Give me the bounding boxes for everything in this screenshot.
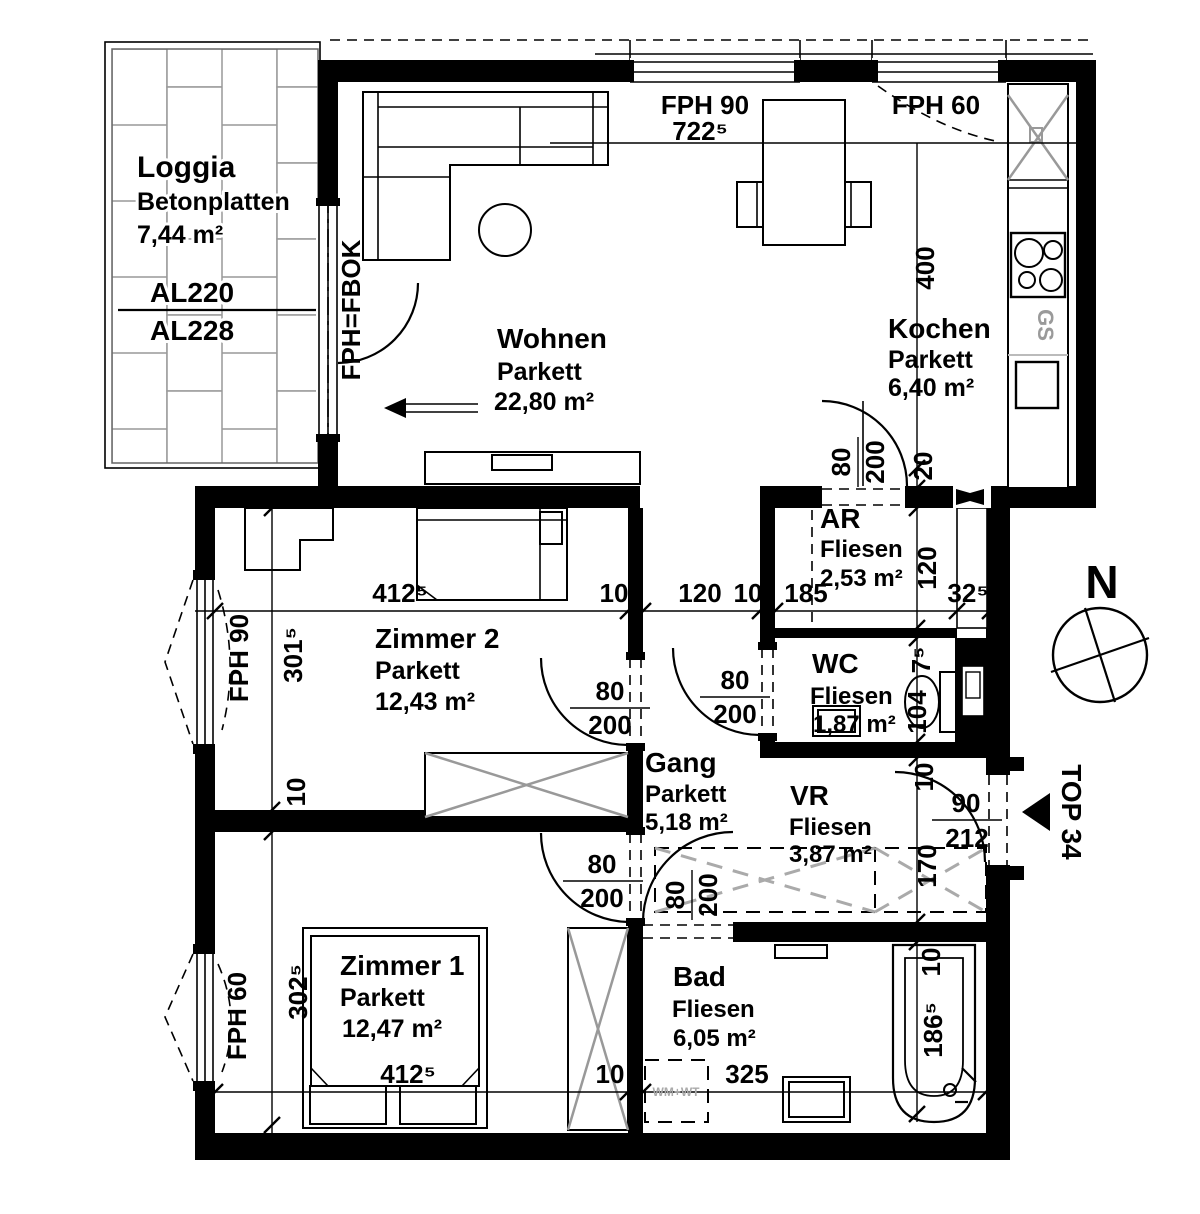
furniture-wardrobe-zimmer2	[425, 753, 628, 817]
bad-floor: Fliesen	[672, 996, 755, 1023]
dim-gang-opening: 120	[678, 578, 721, 608]
vr-floor: Fliesen	[789, 814, 872, 841]
dim-top-total: 722⁵	[672, 116, 728, 146]
svg-text:212: 212	[945, 823, 988, 853]
wohnen-name: Wohnen	[497, 323, 607, 354]
loggia-area: 7,44 m²	[137, 221, 223, 249]
zimmer1-name: Zimmer 1	[340, 950, 465, 981]
furniture-round-table	[479, 204, 531, 256]
dim-kitchen-offset: 20	[908, 452, 938, 481]
window-label-top-60: FPH 60	[892, 90, 980, 120]
radiator-bad	[775, 945, 827, 958]
dim-ar-width: 185	[784, 578, 827, 608]
kochen-name: Kochen	[888, 313, 991, 344]
svg-text:80: 80	[826, 448, 856, 477]
cooktop-icon	[1011, 233, 1065, 297]
ar-area: 2,53 m²	[820, 565, 903, 592]
zimmer2-area: 12,43 m²	[375, 688, 475, 716]
window-top-fph90	[622, 58, 806, 84]
oven-icon	[1016, 362, 1058, 408]
compass-icon	[1051, 608, 1149, 702]
svg-text:200: 200	[860, 440, 890, 483]
dim-vr-length: 170	[912, 844, 942, 887]
bad-area: 6,05 m²	[673, 1025, 756, 1052]
furniture-bed-zimmer2	[417, 508, 567, 600]
kochen-area: 6,40 m²	[888, 374, 974, 402]
gang-name: Gang	[645, 747, 717, 778]
ar-name: AR	[820, 503, 860, 534]
dishwasher-label: GS	[1033, 309, 1058, 341]
vr-area: 3,87 m²	[789, 841, 872, 868]
bad-name: Bad	[673, 961, 726, 992]
shaft	[957, 508, 987, 628]
dim-tub-length: 186⁵	[918, 1002, 948, 1058]
svg-text:80: 80	[660, 881, 690, 910]
dim-shaft-width: 32⁵	[947, 578, 988, 608]
loggia-level-upper: AL220	[150, 277, 234, 308]
floor-plan-drawing: Loggia Betonplatten 7,44 m² AL220 AL228 …	[0, 0, 1200, 1214]
ar-floor: Fliesen	[820, 536, 903, 563]
window-label-left-60: FPH 60	[222, 972, 252, 1060]
wall-niche	[962, 666, 984, 716]
compass-north-label: N	[1085, 556, 1118, 608]
dim-wall-10-right: 10	[909, 763, 939, 792]
loggia-name: Loggia	[137, 151, 236, 184]
svg-text:80: 80	[721, 665, 750, 695]
dim-zimmer2-length: 301⁵	[278, 627, 308, 683]
unit-label: TOP 34	[1056, 764, 1087, 860]
wc-floor: Fliesen	[810, 683, 893, 710]
svg-text:200: 200	[588, 710, 631, 740]
dim-kitchen-length: 400	[910, 246, 940, 289]
loggia-floor: Betonplatten	[137, 188, 290, 216]
dim-ar-length: 120	[912, 546, 942, 589]
dim-wall-10-left: 10	[281, 778, 311, 807]
svg-text:90: 90	[952, 788, 981, 818]
wohnen-area: 22,80 m²	[494, 388, 594, 416]
svg-text:200: 200	[713, 699, 756, 729]
room-loggia	[105, 42, 320, 468]
dim-wall-7-5: 7⁵	[906, 647, 936, 674]
dim-bath-offset: 10	[916, 948, 946, 977]
zimmer2-floor: Parkett	[375, 657, 460, 685]
zimmer1-area: 12,47 m²	[342, 1015, 442, 1043]
svg-text:200: 200	[580, 883, 623, 913]
wohnen-floor: Parkett	[497, 358, 582, 386]
vr-name: VR	[790, 780, 829, 811]
window-label-balcony: FPH=FBOK	[336, 239, 366, 380]
wall-tie-icon	[953, 486, 991, 508]
dim-wall-10-mid2: 10	[734, 578, 763, 608]
dim-wall-10-bottom: 10	[596, 1059, 625, 1089]
dim-bad-width: 325	[725, 1059, 768, 1089]
zimmer1-floor: Parkett	[340, 984, 425, 1012]
svg-text:80: 80	[588, 849, 617, 879]
svg-text:80: 80	[596, 676, 625, 706]
vanity-bad	[783, 1077, 850, 1122]
loggia-level-lower: AL228	[150, 315, 234, 346]
wc-name: WC	[812, 648, 859, 679]
dim-wall-10-mid: 10	[600, 578, 629, 608]
window-label-left-90: FPH 90	[224, 614, 254, 702]
dim-zimmer2-width: 412⁵	[372, 578, 428, 608]
dim-zimmer1-length: 302⁵	[283, 964, 313, 1020]
floor-plan-page: Loggia Betonplatten 7,44 m² AL220 AL228 …	[0, 0, 1200, 1214]
washer-label: WM+WT	[653, 1085, 701, 1099]
gang-floor: Parkett	[645, 781, 726, 808]
furniture-wardrobe-zimmer1	[568, 928, 628, 1130]
svg-text:200: 200	[693, 873, 723, 916]
zimmer2-name: Zimmer 2	[375, 623, 500, 654]
gang-area: 5,18 m²	[645, 809, 728, 836]
dim-wc-length: 104	[902, 690, 932, 734]
kitchen-counter	[1008, 84, 1068, 488]
wc-area: 1,87 m²	[813, 711, 896, 738]
dim-zimmer1-width: 412⁵	[380, 1059, 436, 1089]
kochen-floor: Parkett	[888, 346, 973, 374]
